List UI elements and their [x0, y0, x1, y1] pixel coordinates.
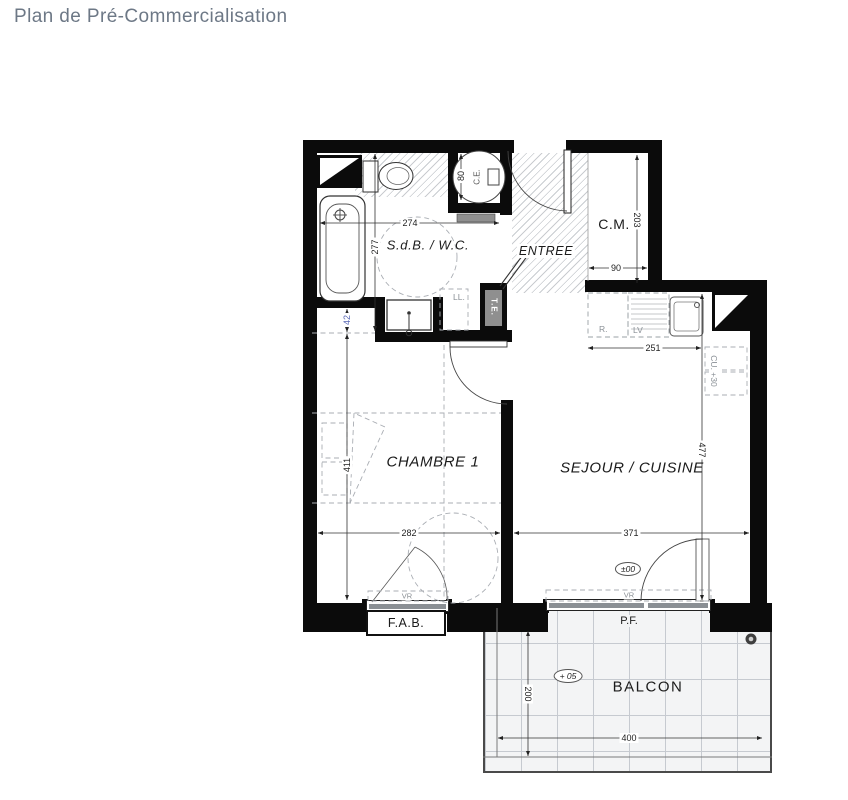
dishwasher-label: LV — [632, 325, 644, 335]
wall-bottom-right — [710, 603, 772, 632]
duct-shaft-kitchen — [712, 292, 751, 331]
dim-cm-width: 90 — [609, 263, 623, 273]
bathtub — [320, 196, 365, 301]
page-title: Plan de Pré-Commercialisation — [14, 6, 287, 28]
dim-sejour-width: 371 — [621, 528, 640, 538]
bedroom-door — [450, 341, 507, 404]
wall-heater-bottom — [448, 203, 503, 213]
dim-sejour-depth: 477 — [697, 440, 707, 459]
washbasin — [387, 300, 431, 336]
wall-left — [303, 140, 317, 632]
floor-plan-page: Plan de Pré-Commercialisation — [0, 0, 848, 800]
room-label-bathroom: S.d.B. / W.C. — [387, 238, 469, 253]
roller-shutter-label: VR — [624, 591, 634, 600]
dim-chambre-depth: 411 — [342, 456, 352, 474]
wall-bath-bottom — [310, 297, 385, 308]
dim-balcon-depth: 200 — [523, 684, 533, 703]
wall-bottom-left — [303, 603, 369, 632]
level-marker-interior: ±00 — [615, 562, 641, 576]
turning-circle-bedroom — [408, 513, 498, 603]
dim-kitchen-width: 251 — [643, 343, 662, 353]
dim-sdb-width: 274 — [400, 218, 419, 228]
duct-shaft-symbol — [320, 158, 359, 185]
level-marker-balcony: + 05 — [554, 669, 583, 683]
wall-kitchen-top — [585, 280, 752, 292]
turning-circle-bathroom — [377, 217, 457, 297]
furniture-outline — [322, 423, 347, 458]
room-label-living-kitchen: SEJOUR / CUISINE — [560, 460, 704, 477]
roller-shutter-label: VR — [402, 592, 412, 601]
toilet-hatch-zone — [355, 153, 458, 197]
kitchen-unit-label: CU. +30 — [709, 354, 719, 387]
wall-chambre-sejour — [501, 400, 513, 610]
water-heater-label: C.E. — [473, 169, 482, 185]
pf-label: P.F. — [618, 615, 640, 627]
wall-cm-right — [648, 140, 662, 292]
balcony-french-window — [546, 599, 711, 611]
dim-heater-diameter: 80 — [456, 169, 466, 183]
fridge-label: R. — [598, 324, 609, 334]
dim-balcon-width: 400 — [619, 733, 638, 743]
dim-chambre-width: 282 — [399, 528, 418, 538]
wall-basin-bottom — [375, 332, 443, 342]
window-glazing — [369, 604, 446, 609]
window-glazing — [648, 603, 708, 608]
heater-closet-threshold — [457, 214, 495, 222]
wall-right — [750, 280, 767, 632]
electrical-panel-label: T.E. — [490, 298, 499, 316]
duct-shaft-symbol — [715, 295, 748, 328]
fab-label-box: F.A.B. — [366, 610, 446, 636]
room-label-entry: ENTREE — [517, 244, 575, 258]
kitchen-sink — [670, 297, 703, 336]
duct-shaft-bathroom — [317, 155, 362, 188]
room-label-bedroom: CHAMBRE 1 — [387, 454, 480, 471]
wall-top-left — [303, 140, 514, 153]
balcony-door — [641, 539, 709, 601]
entry-hatch-zone — [512, 153, 588, 293]
fab-label: F.A.B. — [388, 616, 424, 630]
room-label-balcony: BALCON — [613, 679, 684, 696]
dim-cm-depth: 203 — [632, 210, 642, 229]
wall-bottom-middle — [447, 603, 548, 632]
wardrobe-swing — [350, 413, 385, 503]
dim-wall-offset: 42 — [342, 313, 352, 327]
window-glazing — [549, 603, 644, 608]
dim-sdb-depth: 277 — [370, 237, 380, 256]
room-label-cm: C.M. — [598, 216, 630, 232]
washing-machine-label: LL. — [452, 292, 466, 302]
